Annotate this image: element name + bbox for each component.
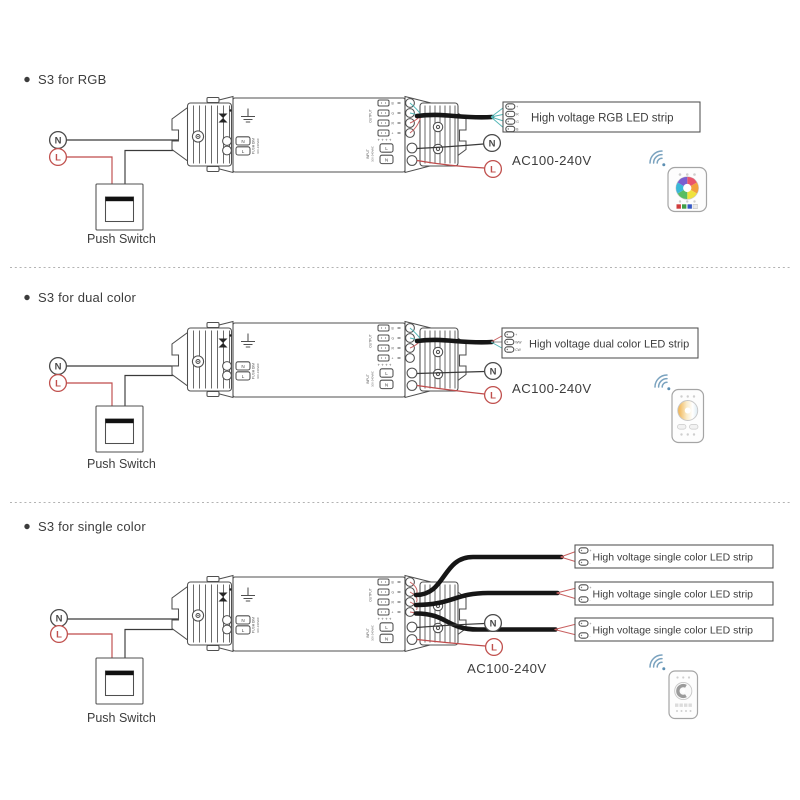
bullet-icon [24,295,29,300]
neutral-badge: N [51,610,68,627]
live-badge: L [51,626,68,643]
svg-text:L: L [490,164,496,175]
live-wire [68,634,113,658]
svg-text:-: - [590,634,591,638]
section-s3-single-color: S3 for single color N L Push Switch [24,519,773,725]
svg-text:N: N [490,618,497,629]
wiring-diagram-page: N L PUSH DIM 100-240VAC OUTPUT B G R [0,0,800,800]
svg-text:N: N [56,613,63,624]
svg-text:WW: WW [515,341,522,345]
neutral-badge: N [50,132,67,149]
wifi-signal-icon [650,655,665,670]
bullet-icon [24,524,29,529]
svg-text:N: N [55,135,62,146]
svg-text:N: N [490,366,497,377]
svg-text:-: - [590,598,591,602]
svg-text:-: - [590,561,591,565]
diagram-canvas: N L PUSH DIM 100-240VAC OUTPUT B G R [0,0,800,800]
live-badge: L [50,149,67,166]
svg-text:+: + [516,105,518,109]
svg-text:CW: CW [515,348,521,352]
led-strip-label: High voltage single color LED strip [593,552,754,564]
bullet-icon [24,77,29,82]
svg-text:L: L [55,152,61,163]
section-s3-rgb: S3 for RGB N L Push Switch [24,72,706,246]
svg-text:L: L [55,378,61,389]
neutral-badge: N [50,358,67,375]
led-strip-label: High voltage single color LED strip [593,625,754,637]
led-strip-single-2: + - High voltage single color LED strip [575,582,773,605]
wifi-signal-icon [650,151,665,166]
live-badge: L [485,161,502,178]
push-switch [96,184,143,230]
svg-text:N: N [55,361,62,372]
push-switch-label: Push Switch [87,457,156,471]
single-color-remote [669,671,698,719]
neutral-badge: N [484,135,501,152]
live-badge: L [50,375,67,392]
svg-text:+: + [515,333,517,337]
svg-text:G: G [516,120,519,124]
led-strip-label: High voltage single color LED strip [593,589,754,601]
push-switch [96,658,143,704]
output-cable [417,115,492,117]
section-title: S3 for RGB [38,72,106,87]
neutral-badge: N [485,363,502,380]
dual-color-remote [672,390,704,443]
live-wire [67,157,113,184]
svg-text:N: N [489,138,496,149]
white-tone-wheel [678,401,698,421]
section-header: S3 for single color [24,519,146,534]
svg-text:L: L [491,642,497,653]
led-strip-label: High voltage RGB LED strip [531,113,674,125]
push-switch-label: Push Switch [87,232,156,246]
section-header: S3 for RGB [24,72,106,87]
ac-voltage-label: AC100-240V [467,661,547,676]
ac-voltage-label: AC100-240V [512,381,592,396]
output-cable [417,340,492,342]
section-header: S3 for dual color [24,290,136,305]
svg-text:+: + [590,549,592,553]
led-strip-rgb: + R G B High voltage RGB LED strip [503,102,700,132]
led-strip-dual: + WW CW High voltage dual color LED stri… [502,328,698,358]
svg-text:+: + [590,622,592,626]
led-strip-single-1: + - High voltage single color LED strip [575,545,773,568]
push-switch-label: Push Switch [87,711,156,725]
live-wire [67,383,113,406]
led-strip-single-3: + - High voltage single color LED strip [575,618,773,641]
live-badge: L [485,387,502,404]
svg-text:L: L [56,629,62,640]
section-title: S3 for dual color [38,290,137,305]
live-badge: L [486,639,503,656]
ac-voltage-label: AC100-240V [512,153,592,168]
wifi-signal-icon [655,375,670,390]
dimmer-dial [675,682,692,699]
section-s3-dual-color: S3 for dual color N L Push Switch [24,290,703,471]
rgb-remote [668,168,707,212]
led-strip-label: High voltage dual color LED strip [529,339,689,351]
neutral-badge: N [485,615,502,632]
svg-text:L: L [490,390,496,401]
svg-text:+: + [590,586,592,590]
section-title: S3 for single color [38,519,146,534]
push-switch [96,406,143,452]
